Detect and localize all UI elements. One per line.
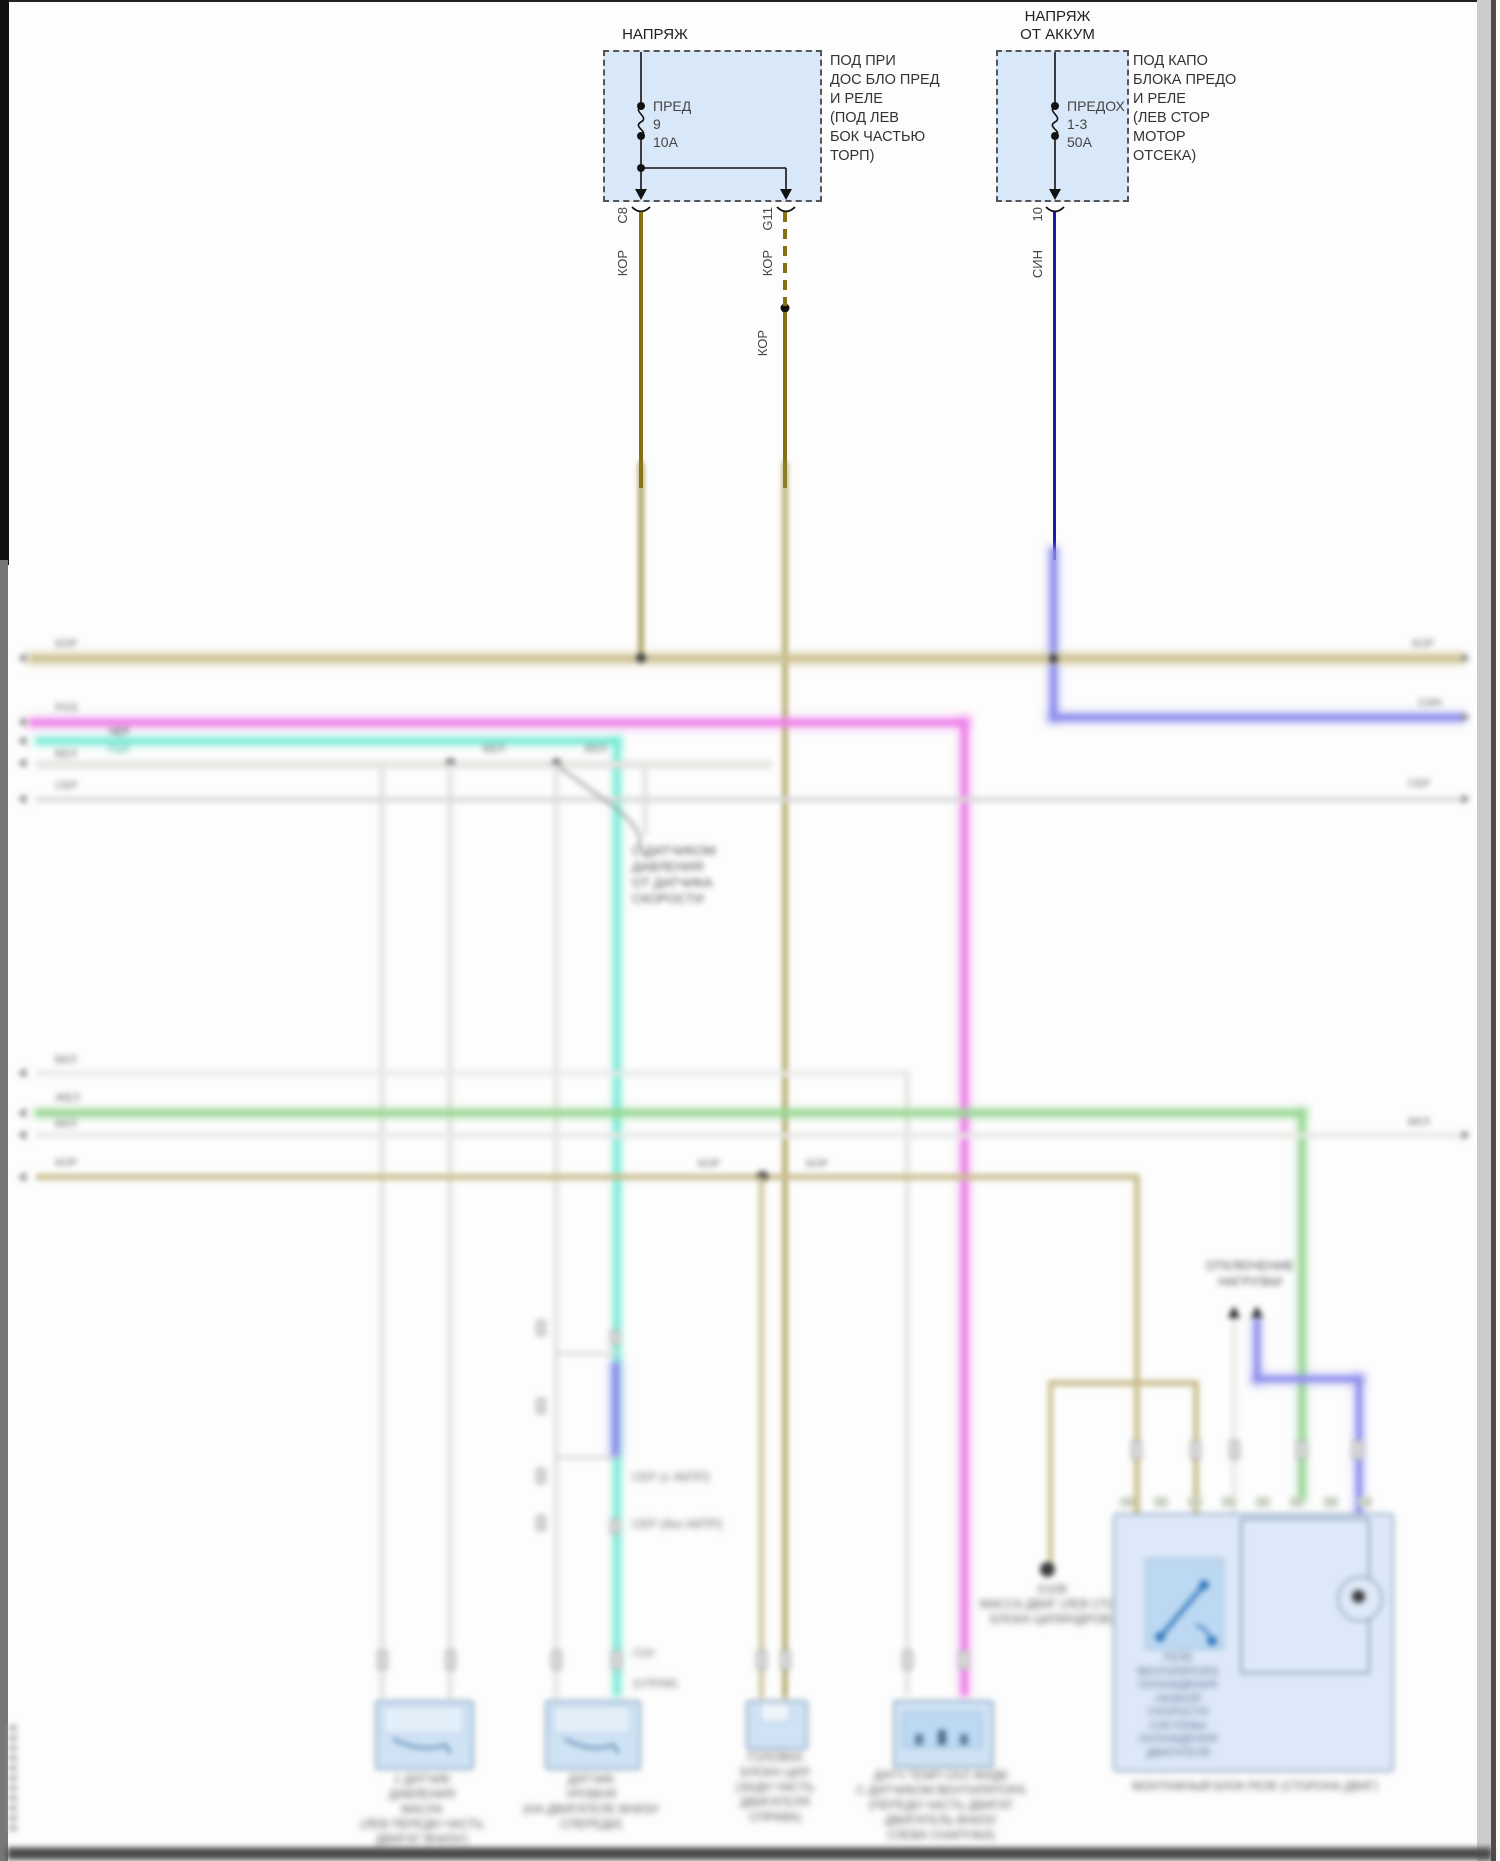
wire-violet-relay-horiz [1254,1376,1362,1382]
relay-pin [1229,1440,1240,1460]
conn-pin [551,1650,562,1670]
edge-arrow-icon [1462,712,1470,722]
wire-white-drop2 [448,763,453,1698]
bus-pink-left-label2: ЧЕР [108,726,130,738]
bottom-bar [7,1847,1492,1860]
wire-tan-tee [1048,1380,1198,1386]
bus-tan2 [36,1174,1140,1180]
mid-annotation-2: СЕР (без АКПП) [632,1517,722,1531]
bus-cyan-left-label: ГОЛ [108,744,129,756]
relay-pin [1131,1440,1142,1460]
disconnect-label: ОТКЛЮЧЕНИЕ НАГРУЗКИ [1175,1258,1325,1290]
bus-gray-right-label: СЕР [1408,778,1431,790]
mid-pin [536,1515,546,1531]
mid-annotation-1: СЕР (с АКПП) [632,1470,710,1484]
bus-tan-main [30,655,1462,662]
bus-blue-right-label: СИН [1418,697,1442,709]
conn-pin [780,1650,791,1670]
c4-line: С ДАТЧИКОМ ВЕНТИЛЯТОРА [831,1783,1051,1798]
conn-pin [902,1650,913,1670]
conn-pin [958,1650,969,1670]
bus-white1-mid-label1: БЕЛ [483,743,505,755]
bus-tan2-left-label: КОР [55,1157,77,1169]
bus-green-left-label: ЖЕЛ [55,1092,80,1104]
wire-tan-ground-branch [1048,1380,1053,1570]
edge-arrow-icon [1462,794,1470,804]
relay-text-line: РЕЛЕ [1128,1652,1228,1666]
c4-line: ДВИГАТЕЛЬ ВНИЗУ [831,1813,1051,1828]
relay-pin-row [1120,1497,1385,1507]
c4-line: ДАТЧ ТЕМП ОХЛ ЖИДК [831,1768,1051,1783]
edge-arrow-icon [18,758,26,768]
relay-pin [1190,1440,1201,1460]
mid-pin [536,1320,546,1336]
mid-tie-1 [556,1352,618,1355]
edge-arrow-icon [18,736,26,746]
conn-pin [611,1650,622,1670]
splice-note-line: ДАВЛЕНИЯ [632,859,716,875]
bus-white3 [36,1133,1462,1138]
bus-gray-left-label: СЕР [55,780,78,792]
c2-line: ДАТЧИК [491,1772,691,1787]
relay-text-line: ОХЛАЖДЕНИЯ [1128,1733,1228,1747]
bus-tan-left-label: КОР [55,638,77,650]
bus-tan2-mid-right-label: КОР [806,1158,828,1170]
bus-white2-left-label: БЕЛ [55,1054,77,1066]
relay-box-caption: МОНТАЖНЫЙ БЛОК РЕЛЕ (СТОРОНА ДВИГ) [1120,1780,1390,1795]
bus-pink [30,719,968,726]
conn2-wire-label2: (СПРАВ) [633,1678,677,1690]
bus-white3-left-label: БЕЛ [55,1118,77,1130]
bus-white1-left-label: БЕЛ [55,748,77,760]
bus-white1-mid-label2: БЕЛ [585,743,607,755]
relay-text-line: ВЕНТИЛЯТОРА [1128,1666,1228,1680]
pin-up-arrow-icon [1251,1306,1263,1318]
edge-arrow-icon [18,1108,26,1118]
wire-tan2-vert [1134,1174,1140,1386]
mid-tie-2 [556,1456,618,1459]
edge-arrow-icon [18,794,26,804]
c2-line: УРОВНЯ [491,1787,691,1802]
blurred-diagram-area: С ДАТЧИКОМ ДАВЛЕНИЯ ОТ ДАТЧИКА СКОРОСТИ … [0,0,1500,1861]
relay-switch-symbol [1142,1555,1232,1655]
junction-sin-tan [1049,654,1058,663]
bus-tan2-mid-left-label: КОР [698,1158,720,1170]
ground-line: МАССА ДВИГ (ЛЕВ СТОР [972,1597,1132,1612]
edge-arrow-icon [18,1172,26,1182]
wire-kor-g11-main [783,462,787,1698]
bus-tan-right-label: КОР [1412,638,1434,650]
edge-arrow-icon [1462,653,1470,663]
mid-pin [610,1518,620,1534]
c2-line: (НА ДВИГАТЕЛЕ ВНИЗУ [491,1802,691,1817]
relay-text-line: СКОРОСТИ [1128,1706,1228,1720]
relay-coil-contact [1352,1590,1365,1603]
disconnect-line: ОТКЛЮЧЕНИЕ [1175,1258,1325,1274]
wire-violet-relay-vert1 [1254,1320,1260,1382]
splice-note-line: СКОРОСТИ [632,891,716,907]
conn-pin [445,1650,456,1670]
relay-pin [1352,1440,1363,1460]
junction-c8-tan [636,653,646,663]
splice-callout-graphic [520,740,820,940]
bus-white2 [36,1071,908,1076]
edge-arrow-icon [18,1068,26,1078]
connector-4-caption: ДАТЧ ТЕМП ОХЛ ЖИДК С ДАТЧИКОМ ВЕНТИЛЯТОР… [831,1768,1051,1843]
wire-white2-vert [905,1071,910,1695]
relay-inner-text: РЕЛЕ ВЕНТИЛЯТОРА ОХЛАЖДЕНИЯ НИЗКОЙ СКОРО… [1128,1652,1228,1760]
connector-sensor-squiggles [375,1725,675,1775]
wire-sin-violet-horiz [1050,714,1462,721]
wire-kor-c8-blur [639,462,643,662]
wire-tan-drop-conn3 [759,1176,764,1698]
relay-pin [1296,1440,1307,1460]
relay-text-line: ОХЛАЖДЕНИЯ [1128,1679,1228,1693]
conn-pin [377,1650,388,1670]
wire-sin-violet-vert [1050,548,1057,720]
splice-note-line: ОТ ДАТЧИКА [632,875,716,891]
c2-line: СПЕРЕДИ) [491,1817,691,1832]
ground-line: G108 [972,1582,1132,1597]
bus-pink-left-label: РОЗ [55,702,77,714]
disconnect-line: НАГРУЗКИ [1175,1274,1325,1290]
wire-white-relay [1232,1320,1237,1513]
conn-pin [756,1650,767,1670]
relay-text-line: ДВИГАТЕЛЯ [1128,1747,1228,1761]
relay-text-line: НИЗКОЙ [1128,1693,1228,1707]
connector-4-nub [938,1730,946,1745]
relay-text-line: СИСТЕМЫ [1128,1720,1228,1734]
bus-white3-right-label: БЕЛ [1408,1116,1430,1128]
wire-white-drop1 [380,763,385,1698]
wire-pink-vert [961,719,968,1695]
mid-pin [536,1468,546,1484]
edge-arrow-icon [18,1130,26,1140]
c1-line: ДВИГАТ ВНИЗУ) [322,1832,522,1847]
edge-arrow-icon [1462,1130,1470,1140]
edge-arrow-icon [18,717,26,727]
ground-dot [1040,1562,1055,1577]
mid-pin [536,1398,546,1414]
connector-3-inner [760,1702,790,1722]
pin-up-arrow-icon [1228,1306,1240,1318]
edge-arrow-icon [18,653,26,663]
mid-pin [610,1330,620,1346]
c4-line: СЛЕВА СНАРУЖИ) [831,1828,1051,1843]
connector-4-nub [960,1734,968,1745]
bus-green [36,1110,1305,1116]
mid-violet-segment [612,1363,619,1455]
splice-note: С ДАТЧИКОМ ДАВЛЕНИЯ ОТ ДАТЧИКА СКОРОСТИ [632,843,716,907]
conn2-wire-label1: ГОЛ [633,1648,654,1660]
c4-line: (ПЕРЕДН ЧАСТЬ ДВИГАТ [831,1798,1051,1813]
ground-line: БЛОКА ЦИЛИНДРОВ) [972,1612,1132,1627]
splice-note-line: С ДАТЧИКОМ [632,843,716,859]
wiring-diagram-page: НАПРЯЖ НАПРЯЖ ОТ АККУМ [0,0,1500,1861]
watermark-strip [9,1725,17,1835]
connector-2-caption: ДАТЧИК УРОВНЯ (НА ДВИГАТЕЛЕ ВНИЗУ СПЕРЕД… [491,1772,691,1832]
connector-4-nub [915,1734,923,1745]
c3-line: ГОЛОВКА [695,1750,855,1765]
ground-label: G108 МАССА ДВИГ (ЛЕВ СТОР БЛОКА ЦИЛИНДРО… [972,1582,1132,1627]
